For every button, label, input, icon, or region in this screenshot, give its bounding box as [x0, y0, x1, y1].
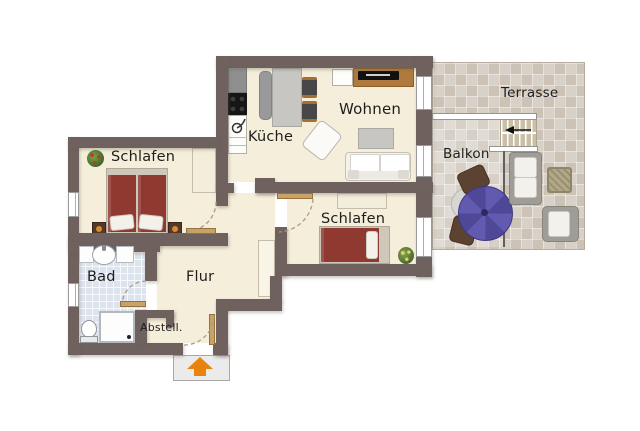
room-label-terrasse: Terrasse: [501, 85, 558, 101]
room-label-flur: Flur: [186, 269, 214, 285]
door-leaf: [120, 301, 146, 307]
room-label-schlafen-rechts: Schlafen: [321, 211, 385, 227]
parasol-center: [481, 209, 488, 216]
sink-seam: [229, 145, 246, 146]
window: [68, 192, 79, 217]
wall-segment: [275, 264, 432, 276]
window: [416, 76, 432, 110]
shower-drain: [127, 335, 131, 339]
tv-label-line: [366, 74, 390, 76]
wall-segment: [145, 252, 157, 281]
floor-plan-canvas: Schlafen Küche Wohnen Schlafen Bad Flur …: [0, 0, 640, 431]
terrace-sofa-cushion: [514, 177, 537, 198]
plant-icon: [398, 247, 414, 264]
terrace-side-table: [547, 167, 572, 193]
door-leaf: [209, 314, 215, 345]
sink-seam: [229, 137, 246, 138]
wall-segment: [216, 183, 234, 193]
dining-table: [272, 68, 302, 127]
wardrobe: [337, 193, 387, 209]
pillow: [138, 214, 163, 231]
window: [416, 217, 432, 257]
toilet-tank: [80, 336, 98, 343]
wardrobe: [192, 148, 216, 193]
dining-chair: [302, 77, 317, 98]
kitchen-counter: [228, 67, 247, 93]
room-label-abstell: Abstell.: [140, 321, 183, 334]
entrance-arrow-icon: [194, 369, 206, 376]
room-label-balkon: Balkon: [443, 146, 490, 162]
room-label-schlafen-links: Schlafen: [111, 149, 175, 165]
sofa-pillow: [348, 170, 359, 179]
wall-segment: [213, 343, 228, 355]
terrace-armchair-cushion: [548, 211, 570, 237]
pillow: [366, 231, 378, 259]
bath-counter: [116, 246, 134, 263]
stove-icon: [228, 93, 247, 115]
wall-segment: [68, 137, 217, 148]
sofa-pillow: [398, 170, 409, 179]
pillow: [109, 214, 134, 231]
wall-segment: [216, 56, 433, 68]
faucet-icon: [102, 245, 106, 251]
room-label-kueche: Küche: [248, 129, 293, 145]
window: [416, 145, 432, 177]
terrace-sofa-cushion: [514, 157, 537, 178]
coffee-table: [358, 128, 394, 149]
window: [68, 283, 79, 307]
plant-icon: [87, 150, 104, 167]
room-label-wohnen: Wohnen: [339, 100, 401, 118]
door-leaf: [186, 228, 216, 234]
kitchen-sink-unit: [228, 115, 247, 154]
wall-segment: [255, 182, 433, 193]
shelf: [332, 69, 353, 86]
door-leaf: [277, 193, 313, 199]
balcony-railing: [432, 113, 537, 120]
dining-chair: [302, 101, 317, 122]
room-label-bad: Bad: [87, 269, 116, 285]
wall-segment: [68, 343, 183, 355]
kitchen-bench: [259, 71, 272, 120]
wall-segment: [270, 276, 282, 301]
entrance-arrow-icon: [187, 357, 213, 369]
